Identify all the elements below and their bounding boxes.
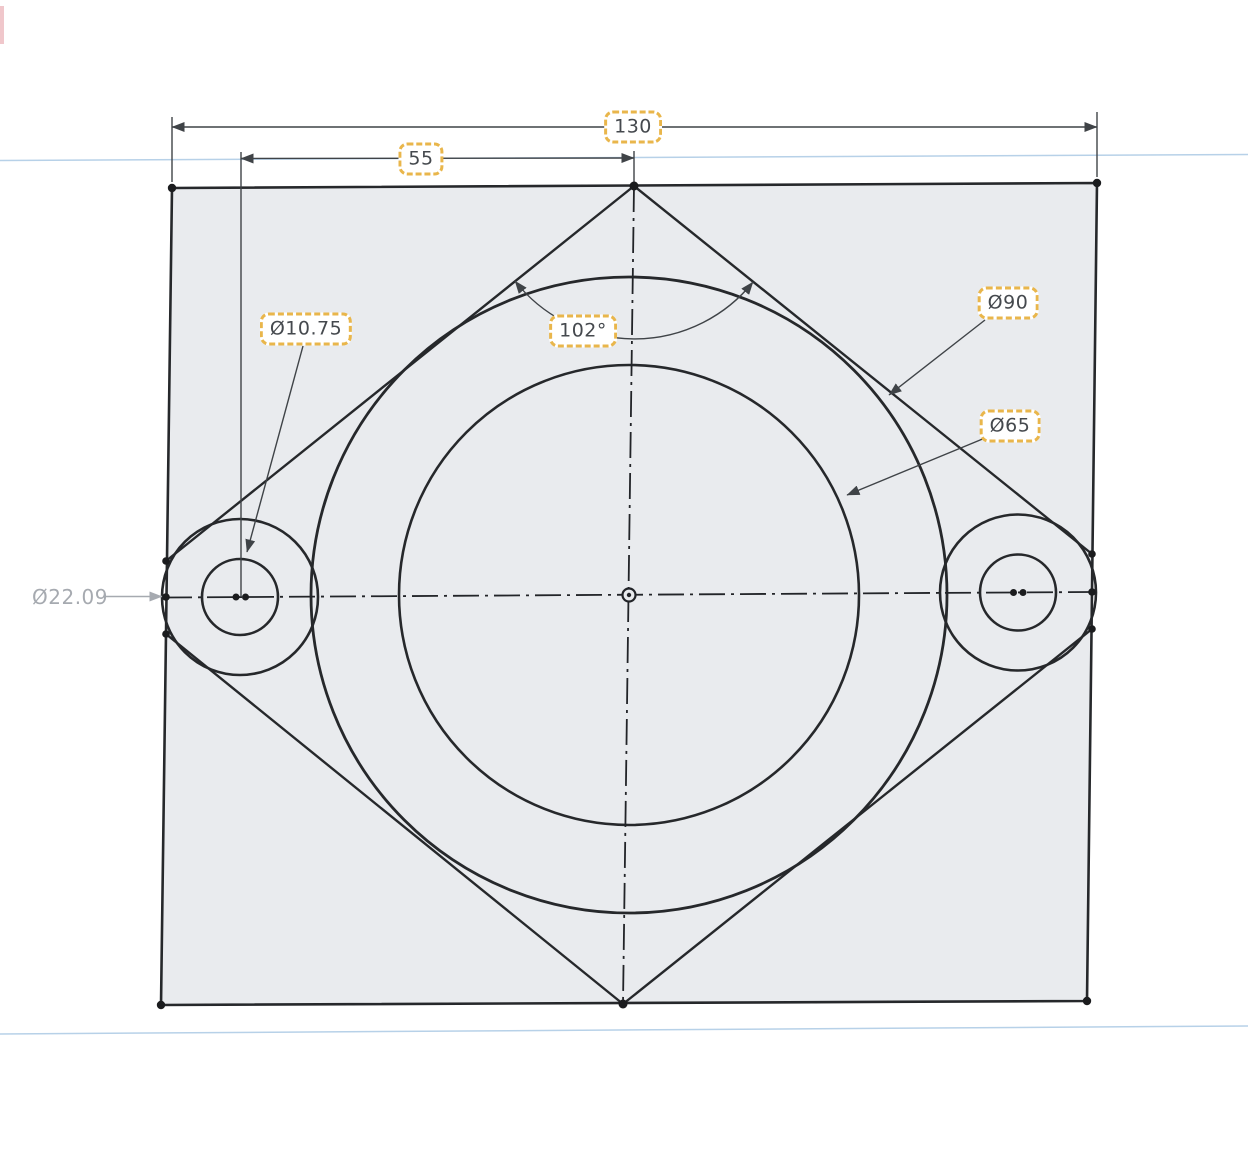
dimension-label-d90[interactable]: Ø90 xyxy=(978,287,1039,320)
dimension-label-d22-09[interactable]: Ø22.09 xyxy=(32,585,108,609)
construction-line-bottom[interactable] xyxy=(0,1026,1248,1034)
dimension-label-102deg[interactable]: 102° xyxy=(549,315,617,348)
point-right-hole-center-a[interactable] xyxy=(1010,589,1017,596)
dimension-label-130[interactable]: 130 xyxy=(604,111,662,144)
cad-viewport: 130 55 102° Ø10.75 Ø90 Ø65 Ø22.09 xyxy=(0,0,1248,1166)
point-corner-top-right[interactable] xyxy=(1093,179,1101,187)
dimension-label-d10-75[interactable]: Ø10.75 xyxy=(260,313,352,346)
point-right-edge-upper[interactable] xyxy=(1088,550,1096,558)
origin-dot xyxy=(627,593,631,597)
point-left-edge-lower[interactable] xyxy=(162,630,170,638)
point-top-vertex[interactable] xyxy=(630,182,639,191)
point-right-edge-lower[interactable] xyxy=(1088,625,1096,633)
point-corner-bottom-right[interactable] xyxy=(1083,997,1091,1005)
sketch-canvas[interactable] xyxy=(0,0,1248,1166)
point-bottom-vertex[interactable] xyxy=(619,1000,628,1009)
dimension-label-d65[interactable]: Ø65 xyxy=(980,410,1041,443)
point-right-edge-mid[interactable] xyxy=(1088,588,1096,596)
point-left-hole-center-a[interactable] xyxy=(233,594,240,601)
point-left-edge-mid[interactable] xyxy=(162,593,170,601)
point-left-edge-upper[interactable] xyxy=(162,557,170,565)
dimension-label-55[interactable]: 55 xyxy=(398,143,443,176)
point-left-hole-center-b[interactable] xyxy=(242,594,249,601)
point-right-hole-center-b[interactable] xyxy=(1020,589,1027,596)
point-corner-bottom-left[interactable] xyxy=(157,1001,165,1009)
point-corner-top-left[interactable] xyxy=(168,184,176,192)
origin-marker[interactable] xyxy=(623,589,636,602)
